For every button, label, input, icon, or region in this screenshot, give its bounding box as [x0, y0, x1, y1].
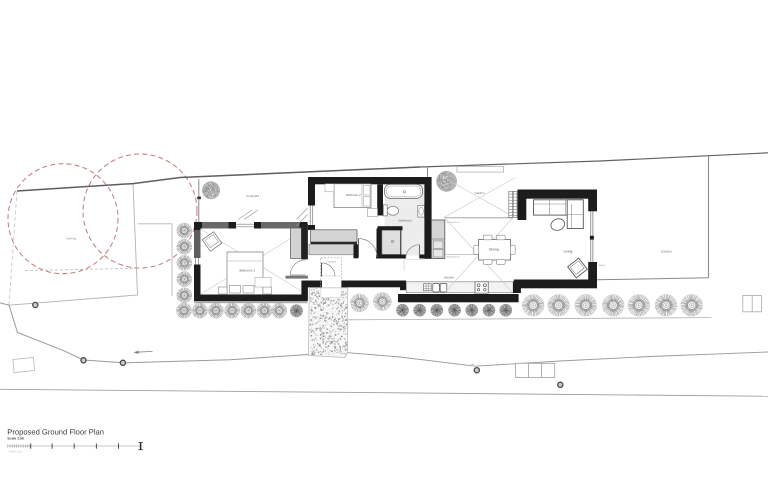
svg-text:Garden: Garden [475, 191, 485, 195]
svg-text:Kitchen: Kitchen [444, 275, 454, 279]
svg-text:Living: Living [564, 250, 573, 254]
svg-text:Entrance: Entrance [327, 261, 337, 264]
svg-text:Bedroom 2: Bedroom 2 [346, 193, 361, 197]
svg-text:Bedroom 1: Bedroom 1 [240, 269, 256, 273]
svg-text:Garden: Garden [661, 250, 672, 254]
svg-text:Proposed Ground Floor Plan: Proposed Ground Floor Plan [7, 428, 104, 437]
svg-text:Scale 1:50: Scale 1:50 [7, 436, 24, 440]
svg-text:0 0.5 1 2 m: 0 0.5 1 2 m [9, 450, 22, 453]
svg-text:sliding doors: sliding doors [447, 255, 461, 258]
svg-text:Courtyard: Courtyard [246, 194, 260, 198]
svg-text:Parking: Parking [66, 237, 77, 241]
svg-text:Dining: Dining [489, 248, 499, 252]
svg-text:Bathroom: Bathroom [399, 219, 413, 223]
svg-text:sliding: sliding [599, 264, 606, 267]
